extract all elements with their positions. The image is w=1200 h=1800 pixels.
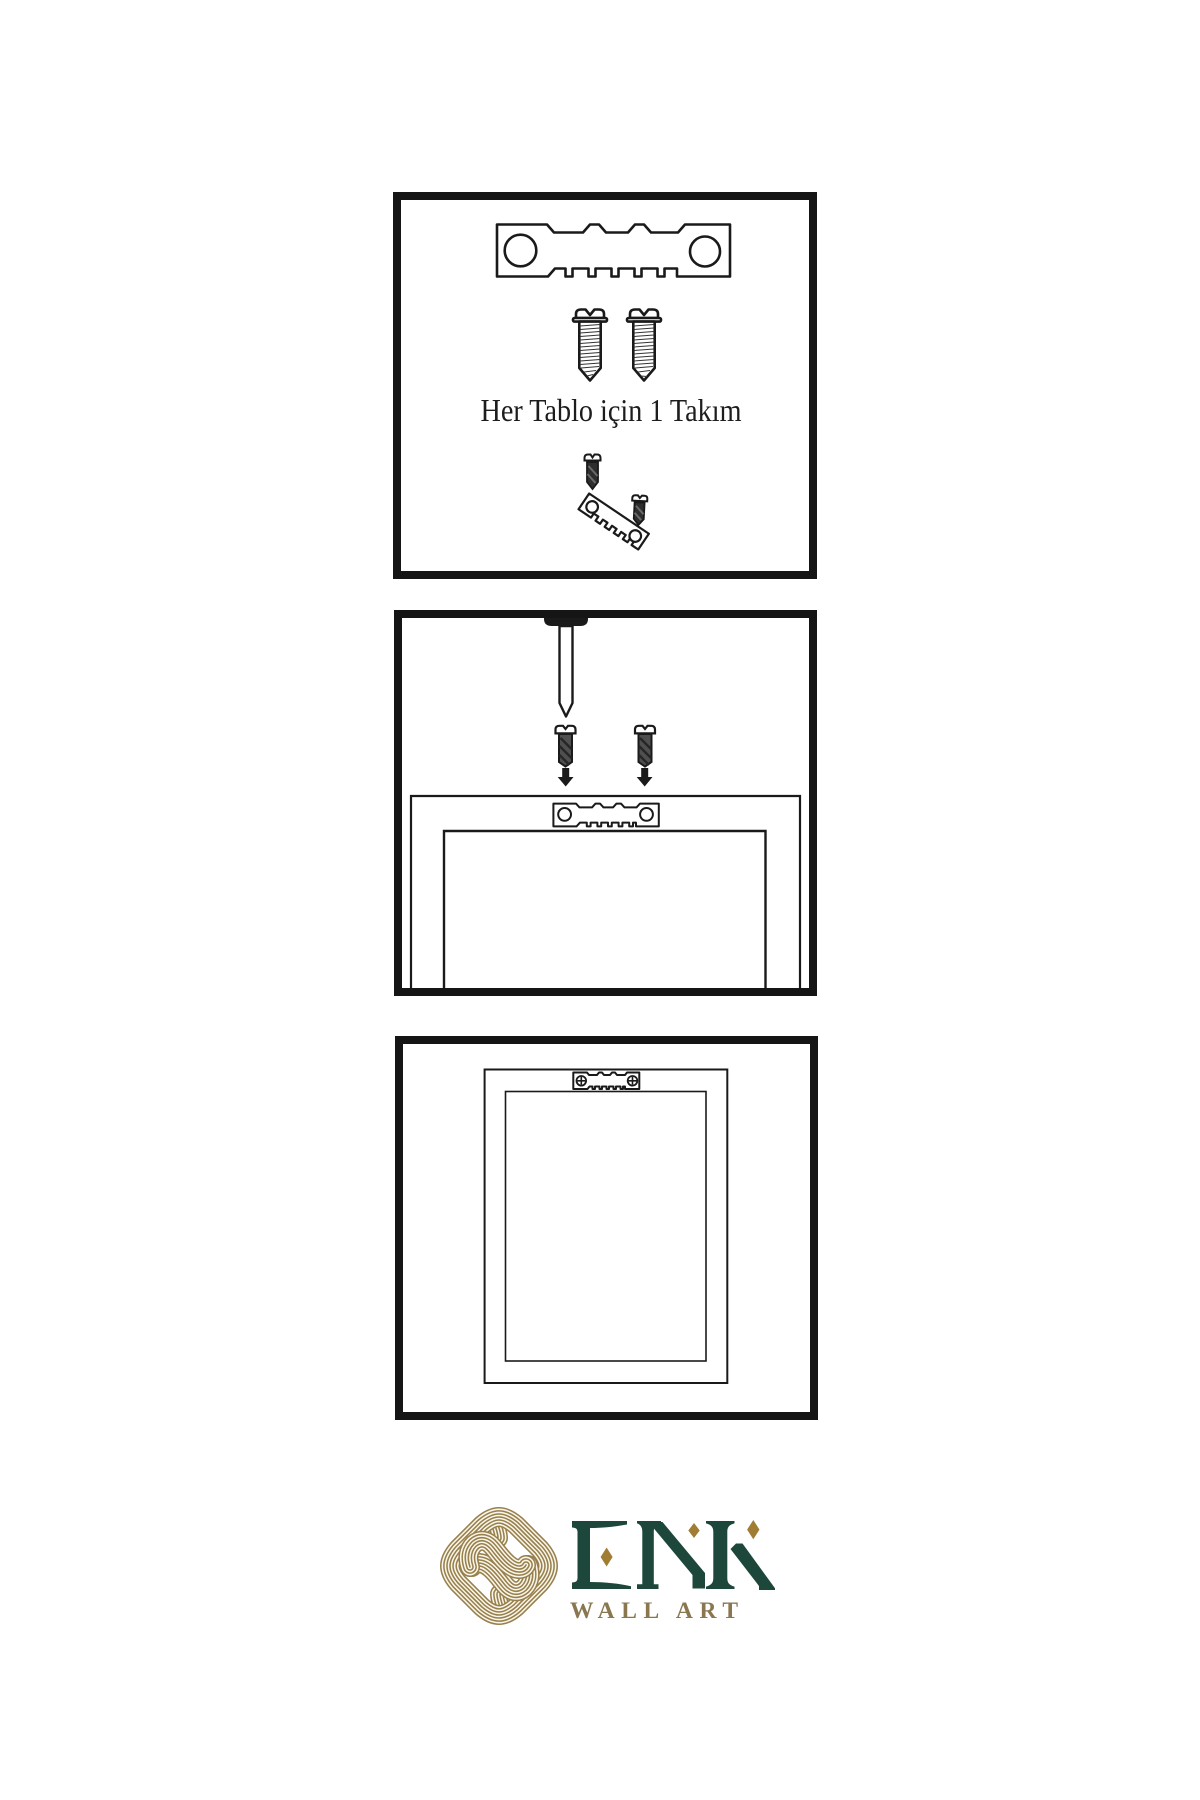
svg-text:Her Tablo için 1 Takım: Her Tablo için 1 Takım (481, 392, 742, 428)
svg-text:WALL ART: WALL ART (570, 1598, 738, 1624)
